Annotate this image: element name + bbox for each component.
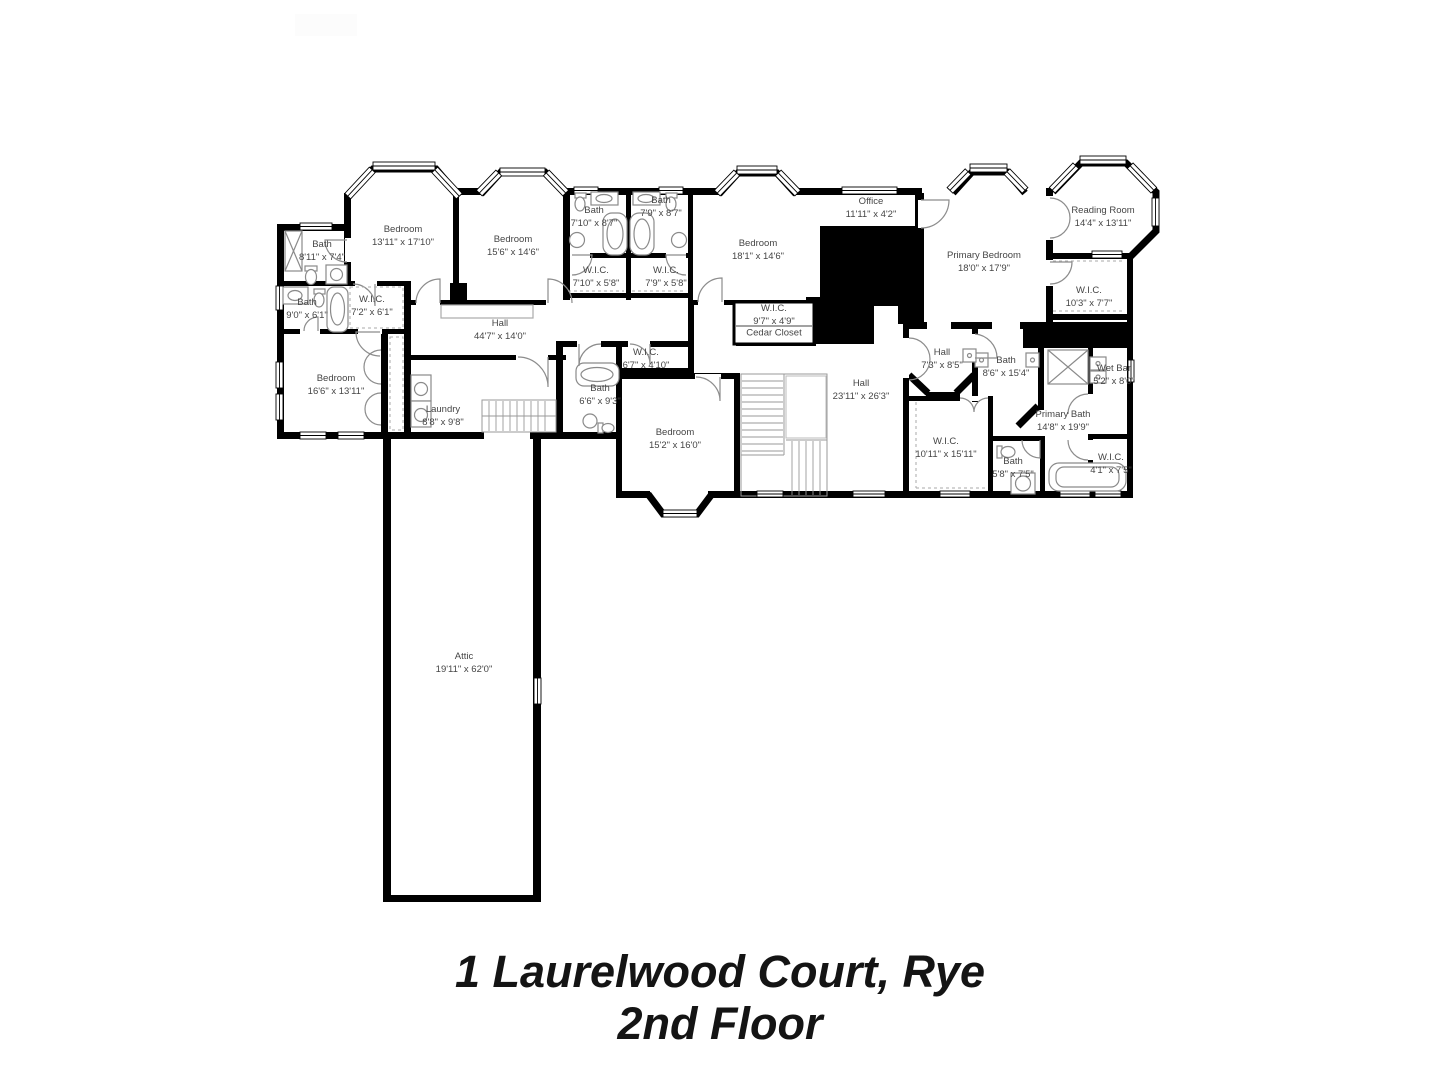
window-icon bbox=[663, 510, 697, 517]
bathtub-icon bbox=[327, 287, 348, 332]
window-icon bbox=[276, 362, 283, 388]
title-address: 1 Laurelwood Court, Rye bbox=[0, 946, 1440, 998]
sink-icon bbox=[975, 353, 988, 367]
window-icon bbox=[1128, 360, 1134, 382]
window-icon bbox=[1127, 163, 1156, 193]
sink-icon bbox=[1090, 371, 1106, 383]
bathtub-icon bbox=[603, 213, 627, 255]
window-icon bbox=[1092, 251, 1122, 258]
sink-icon bbox=[672, 233, 687, 248]
window-icon bbox=[757, 491, 783, 497]
toilet-icon bbox=[598, 423, 614, 433]
window-icon bbox=[970, 164, 1007, 172]
main-staircase bbox=[741, 374, 827, 496]
window-icon bbox=[775, 170, 800, 196]
dryer-icon bbox=[411, 401, 431, 427]
sink-icon bbox=[1090, 357, 1106, 370]
sink-icon bbox=[1011, 473, 1035, 494]
window-icon bbox=[276, 286, 283, 310]
toilet-icon bbox=[997, 446, 1015, 458]
window-icon bbox=[432, 167, 462, 199]
window-icon bbox=[1095, 491, 1121, 497]
window-icon bbox=[476, 170, 501, 196]
sink-icon bbox=[633, 192, 660, 205]
sink-icon bbox=[591, 192, 618, 205]
washer-icon bbox=[411, 375, 431, 401]
window-icon bbox=[1060, 491, 1090, 497]
sink-icon bbox=[283, 287, 308, 304]
window-icon bbox=[737, 166, 777, 174]
window-icon bbox=[543, 170, 568, 196]
shower-icon bbox=[285, 231, 302, 271]
toilet-icon bbox=[305, 266, 317, 285]
sink-icon bbox=[326, 265, 347, 284]
window-icon bbox=[1080, 156, 1126, 164]
sink-icon bbox=[583, 414, 597, 428]
window-icon bbox=[500, 168, 545, 176]
sink-icon bbox=[570, 233, 585, 248]
window-icon bbox=[1004, 169, 1028, 193]
window-icon bbox=[853, 491, 885, 497]
walls bbox=[277, 188, 1133, 902]
bathtub-icon bbox=[576, 363, 619, 386]
window-icon bbox=[276, 394, 283, 420]
sink-icon bbox=[1026, 353, 1039, 367]
sink-icon bbox=[963, 349, 976, 362]
toilet-icon bbox=[314, 289, 325, 307]
toilet-icon bbox=[666, 193, 677, 211]
toilet-icon bbox=[575, 193, 586, 211]
window-icon bbox=[534, 678, 541, 704]
window-icon bbox=[842, 187, 897, 194]
title-block: 1 Laurelwood Court, Rye 2nd Floor bbox=[0, 946, 1440, 1050]
hall-builtin bbox=[441, 305, 533, 318]
bathtub-icon bbox=[1049, 463, 1126, 491]
window-icon bbox=[714, 170, 739, 196]
window-icon bbox=[1152, 198, 1159, 226]
floor-plan-page: Bath8'11" x 7'4"Bedroom13'11" x 17'10"Be… bbox=[0, 0, 1440, 1080]
floor-plan-drawing bbox=[0, 0, 1440, 1080]
window-icon bbox=[300, 432, 326, 439]
window-icon bbox=[373, 162, 435, 170]
shower-icon bbox=[1048, 350, 1088, 384]
bathtub-icon bbox=[630, 213, 654, 255]
window-icon bbox=[1049, 163, 1078, 193]
window-icon bbox=[940, 491, 970, 497]
window-icon bbox=[300, 223, 332, 230]
window-icon bbox=[338, 432, 364, 439]
title-floor: 2nd Floor bbox=[0, 998, 1440, 1050]
window-icon bbox=[345, 167, 375, 199]
cedar-closet-box bbox=[734, 302, 814, 344]
